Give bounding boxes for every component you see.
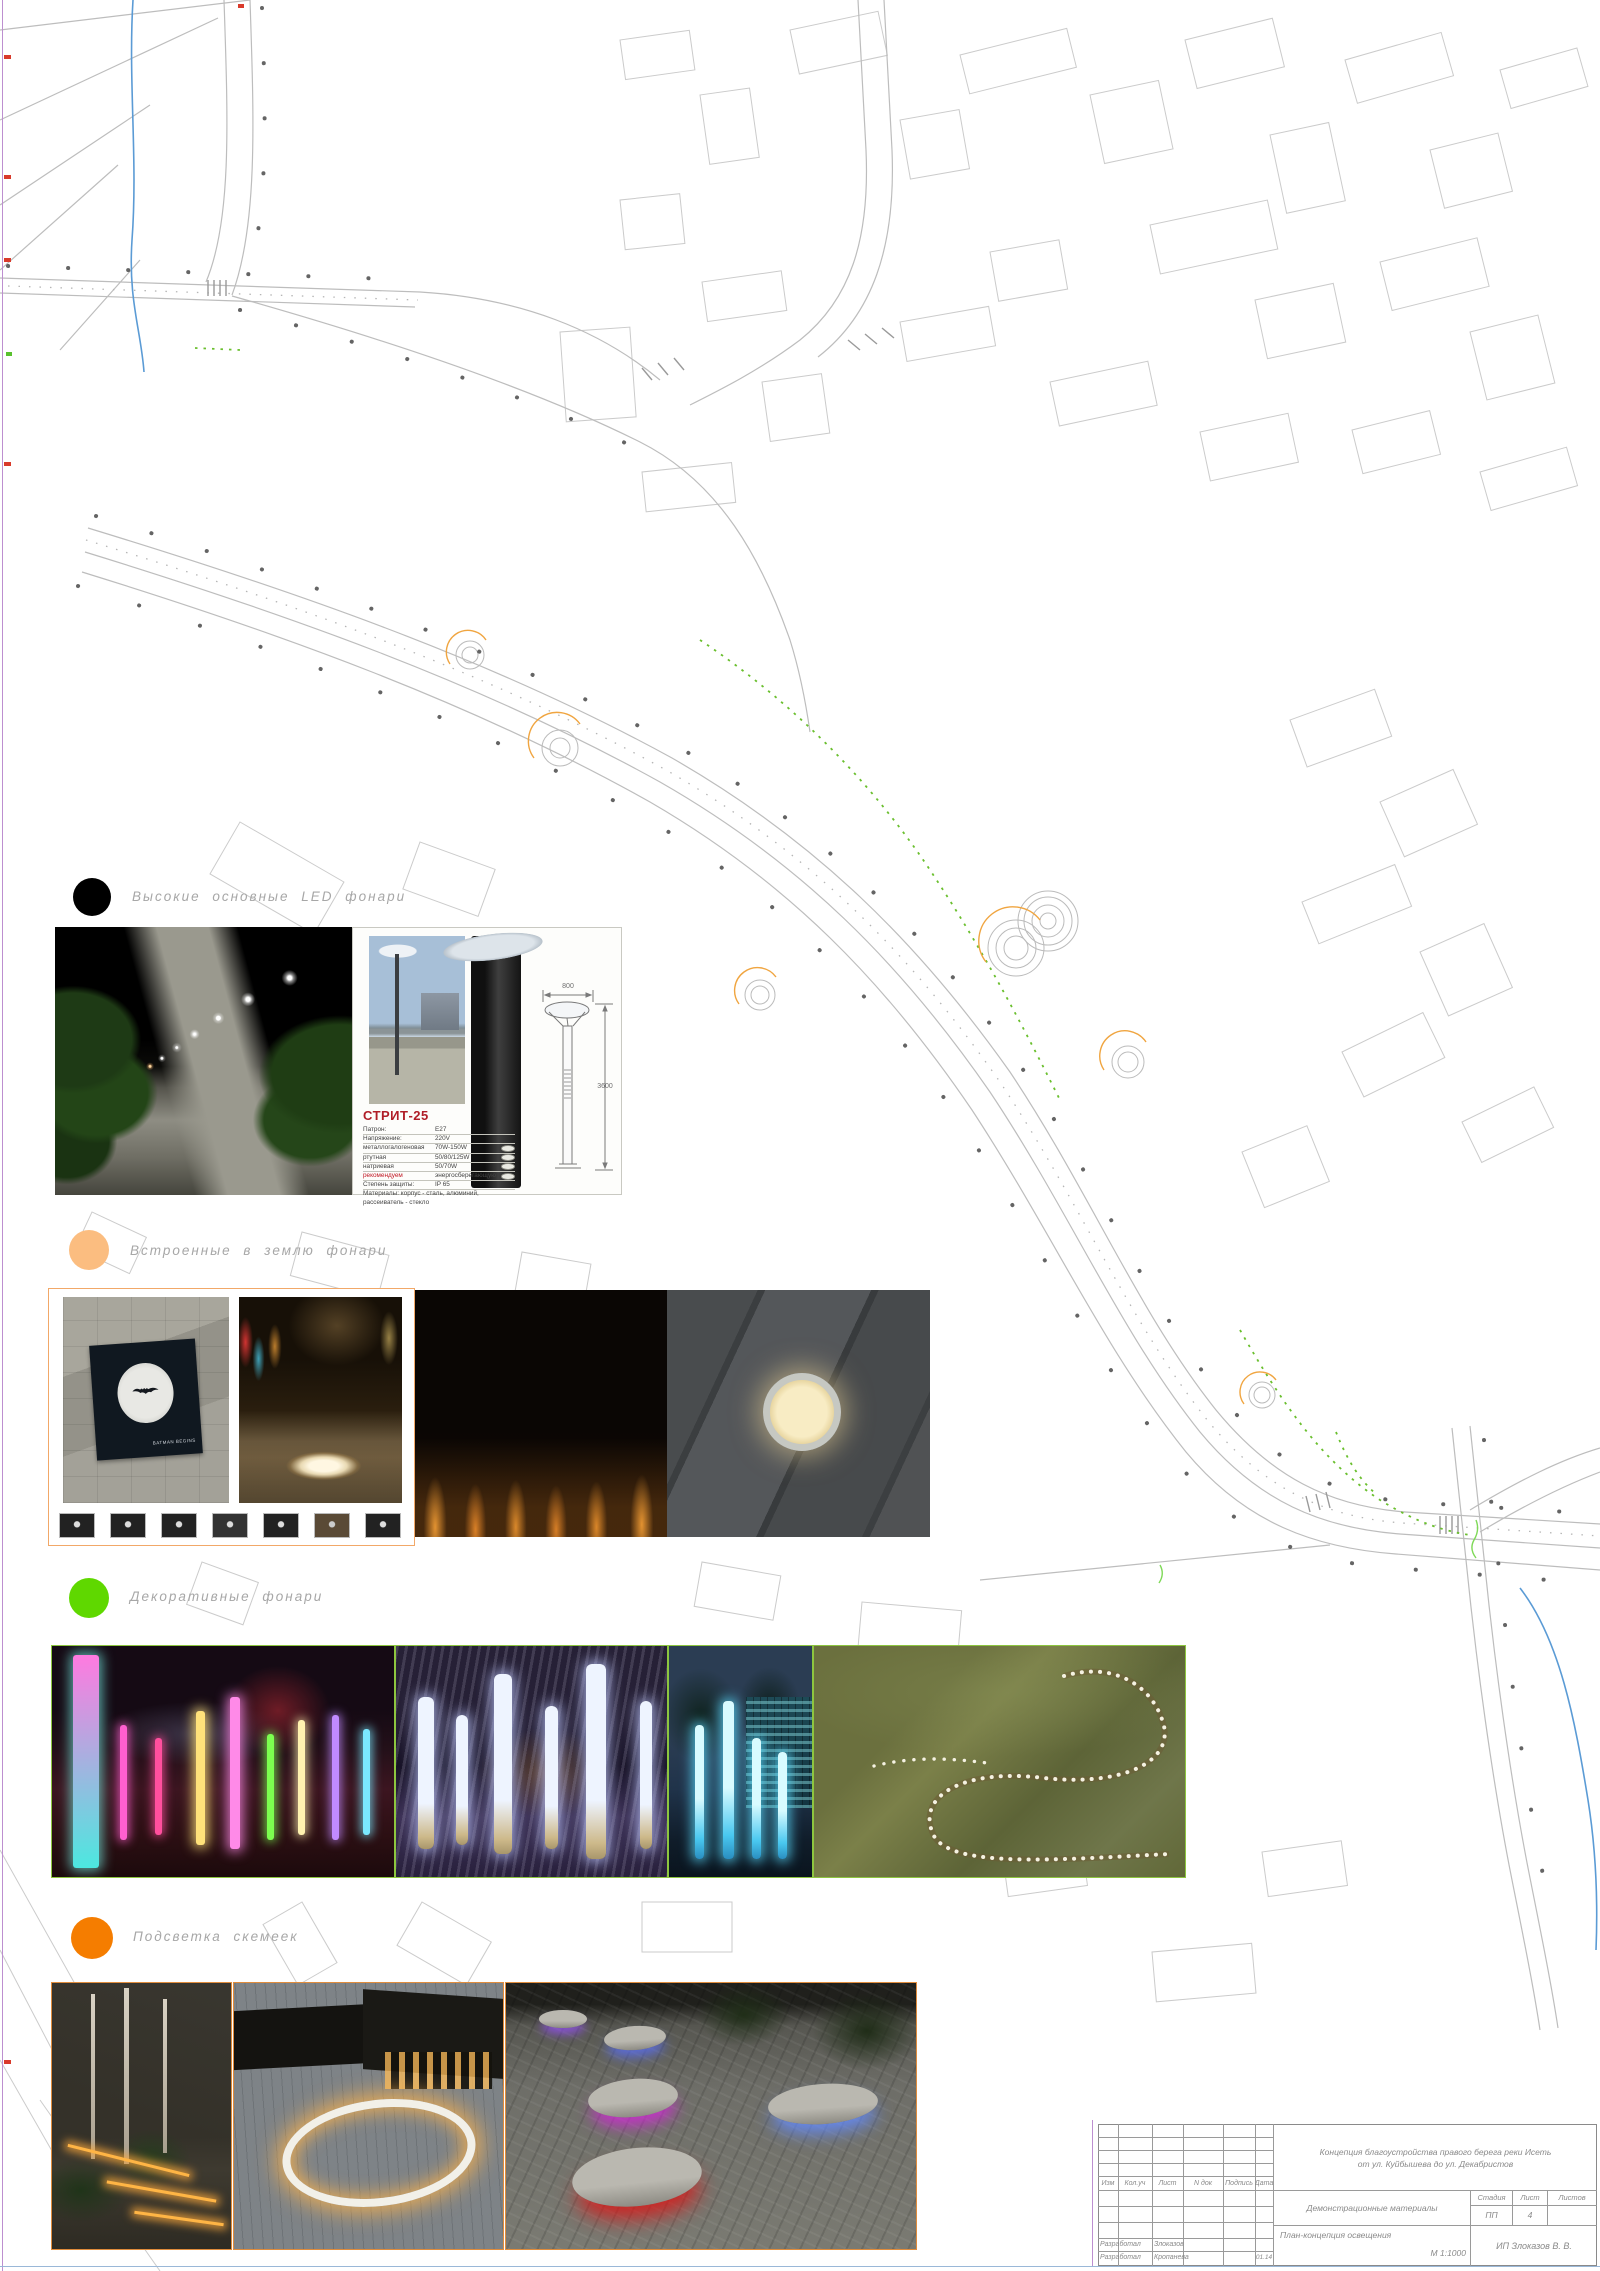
light-tube (695, 1725, 704, 1859)
tb-role-1: Разработал (1098, 2238, 1154, 2251)
light-column (640, 1701, 652, 1849)
spec-row: Напряжение:220V (363, 1135, 515, 1144)
title-block-frame-line (1092, 2120, 1093, 2266)
ground-plate-shape: BATMAN BEGINS (89, 1339, 203, 1461)
spec-row: рассеиватель - стекло (363, 1199, 515, 1207)
spec-card-title: СТРИТ-25 (363, 1108, 429, 1123)
batman-plate-caption: BATMAN BEGINS (152, 1438, 195, 1446)
photo-plaza-underlit-stone-benches (505, 1982, 917, 2250)
photo-curved-lit-bench-deck (233, 1982, 504, 2250)
tb-sheets-value (1548, 2206, 1596, 2224)
photo-night-avenue-led-lamps (55, 927, 352, 1195)
dimension-height-label: 3600 (597, 1083, 613, 1090)
lamp-icon (501, 1163, 515, 1170)
tb-col-list: Лист (1152, 2176, 1183, 2190)
projector-lens-shape (116, 1361, 175, 1425)
legend-label-decorative: Декоративные фонари (130, 1589, 323, 1604)
product-thumbnail (365, 1513, 401, 1538)
photo-aerial-winding-bollards (813, 1645, 1186, 1878)
spec-row: натриевая50/70W (363, 1163, 515, 1172)
tb-name-1: Злоказов (1154, 2238, 1214, 2251)
tb-col-data: Дата (1255, 2176, 1273, 2190)
lamp-dimension-drawing: 800 3600 (529, 978, 615, 1188)
tb-col-podpis: Подпись (1223, 2176, 1255, 2190)
tb-date-2: 01.14 (1255, 2251, 1273, 2264)
light-stick (267, 1734, 274, 1840)
tb-doc-type: Демонстрационные материалы (1278, 2192, 1466, 2224)
light-tube (723, 1701, 734, 1858)
product-thumbnail (161, 1513, 197, 1538)
birch-trunk (91, 1994, 95, 2159)
light-column (545, 1706, 558, 1849)
birch-trunk (124, 1988, 129, 2164)
tb-sheet-label: Лист (1513, 2190, 1547, 2205)
tb-scale: М 1:1000 (1388, 2246, 1466, 2260)
lamp-spec-card: СТРИТ-25 Патрон:E27 Напряжение:220V мета… (352, 927, 622, 1195)
spec-row: Патрон:E27 (363, 1126, 515, 1135)
bat-logo-icon (132, 1384, 159, 1399)
light-stick (73, 1655, 99, 1868)
light-stick (230, 1697, 240, 1849)
photo-colorful-light-sticks (51, 1645, 395, 1878)
spec-row: ртутная50/80/125W (363, 1154, 515, 1163)
legend-marker-decorative (69, 1578, 109, 1618)
spec-row: металлогалогеновая70W-150W (363, 1144, 515, 1153)
lamp-icon (501, 1145, 515, 1152)
product-thumbnail (110, 1513, 146, 1538)
light-tube (752, 1738, 761, 1858)
bollard-path-drawing (814, 1646, 1185, 1877)
photo-wall-uplights (415, 1290, 667, 1537)
photo-glowing-light-columns (395, 1645, 668, 1878)
tb-stage-label: Стадия (1471, 2190, 1512, 2205)
legend-label-bench: Подсветка скемеек (133, 1929, 299, 1944)
lamp-icon (501, 1154, 515, 1161)
stone-bench (569, 2141, 704, 2212)
light-stick (298, 1720, 305, 1836)
tb-sheet-value: 4 (1513, 2206, 1547, 2224)
product-thumbnail (314, 1513, 350, 1538)
legend-marker-in-ground (69, 1230, 109, 1270)
photo-blue-light-tubes-trees (668, 1645, 813, 1878)
tb-name-2: Кропанева (1154, 2251, 1214, 2264)
photo-recessed-ground-ring-light (667, 1290, 930, 1537)
lamp-canopy-shape (442, 928, 544, 966)
light-tube (778, 1752, 787, 1858)
tb-col-koluch: Кол.уч (1118, 2176, 1152, 2190)
dimension-width-label: 800 (562, 983, 574, 990)
building-silhouette (421, 993, 459, 1030)
tb-sheets-label: Листов (1548, 2190, 1596, 2205)
birch-trunk (163, 1999, 167, 2153)
tb-col-izm: Изм (1098, 2176, 1118, 2190)
tb-sheet-name: План-концепция освещения (1280, 2228, 1466, 2242)
tb-col-ndok: N док (1183, 2176, 1223, 2190)
product-thumbnail (263, 1513, 299, 1538)
lit-windows (385, 2052, 493, 2089)
stone-bench (587, 2075, 680, 2121)
stone-bench (539, 2010, 587, 2028)
lamp-pole-shape (395, 954, 399, 1075)
light-column (494, 1674, 512, 1854)
led-strip (68, 2143, 190, 2176)
product-thumbnail (212, 1513, 248, 1538)
light-stick (363, 1729, 370, 1835)
tb-role-2: Разработал (1098, 2251, 1154, 2264)
tb-stage-value: ПП (1471, 2206, 1512, 2224)
curved-bench-shape (277, 2089, 482, 2218)
photo-night-street-light-beam (239, 1297, 402, 1503)
light-stick (120, 1725, 127, 1841)
light-column (586, 1664, 606, 1858)
lamp-icon (501, 1173, 515, 1180)
page-frame-left (2, 0, 3, 2271)
spec-row-recommended: рекомендуемэнергосберегающую (363, 1172, 515, 1181)
title-block: Изм Кол.уч Лист N док Подпись Дата Разра… (1098, 2120, 1597, 2266)
photo-batman-ground-plate: BATMAN BEGINS (63, 1297, 229, 1503)
stone-bench (604, 2023, 668, 2051)
in-ground-examples-panel: BATMAN BEGINS (48, 1288, 415, 1546)
legend-label-led-main: Высокие основные LED фонари (132, 889, 406, 904)
spec-row: Степень защиты:IP 65 (363, 1181, 515, 1190)
led-strip (135, 2211, 224, 2226)
led-strip (106, 2181, 216, 2203)
light-column (418, 1697, 434, 1849)
tb-company: ИП Злоказов В. В. (1471, 2225, 1597, 2266)
photo-bench-underlight-birches (51, 1982, 232, 2250)
spec-table: Патрон:E27 Напряжение:220V металлогалоге… (363, 1126, 515, 1207)
stone-bench (767, 2080, 880, 2128)
photo-decorative-lamp-post (369, 936, 465, 1104)
product-thumbnail (59, 1513, 95, 1538)
light-stick (332, 1715, 339, 1840)
light-stick (196, 1711, 205, 1845)
spec-row: Материалы: корпус - сталь, алюминий, (363, 1190, 515, 1198)
drawing-sheet: Высокие основные LED фонари Встроенные в… (0, 0, 1600, 2271)
page-frame-bottom (0, 2266, 1600, 2267)
light-stick (155, 1738, 162, 1835)
legend-label-in-ground: Встроенные в землю фонари (130, 1243, 387, 1258)
legend-marker-led-main (73, 878, 111, 916)
legend-marker-bench (71, 1917, 113, 1959)
light-column (456, 1715, 468, 1844)
tb-project-title: Концепция благоустройства правого берега… (1278, 2132, 1593, 2184)
ground-ring-light-shape (763, 1373, 841, 1451)
